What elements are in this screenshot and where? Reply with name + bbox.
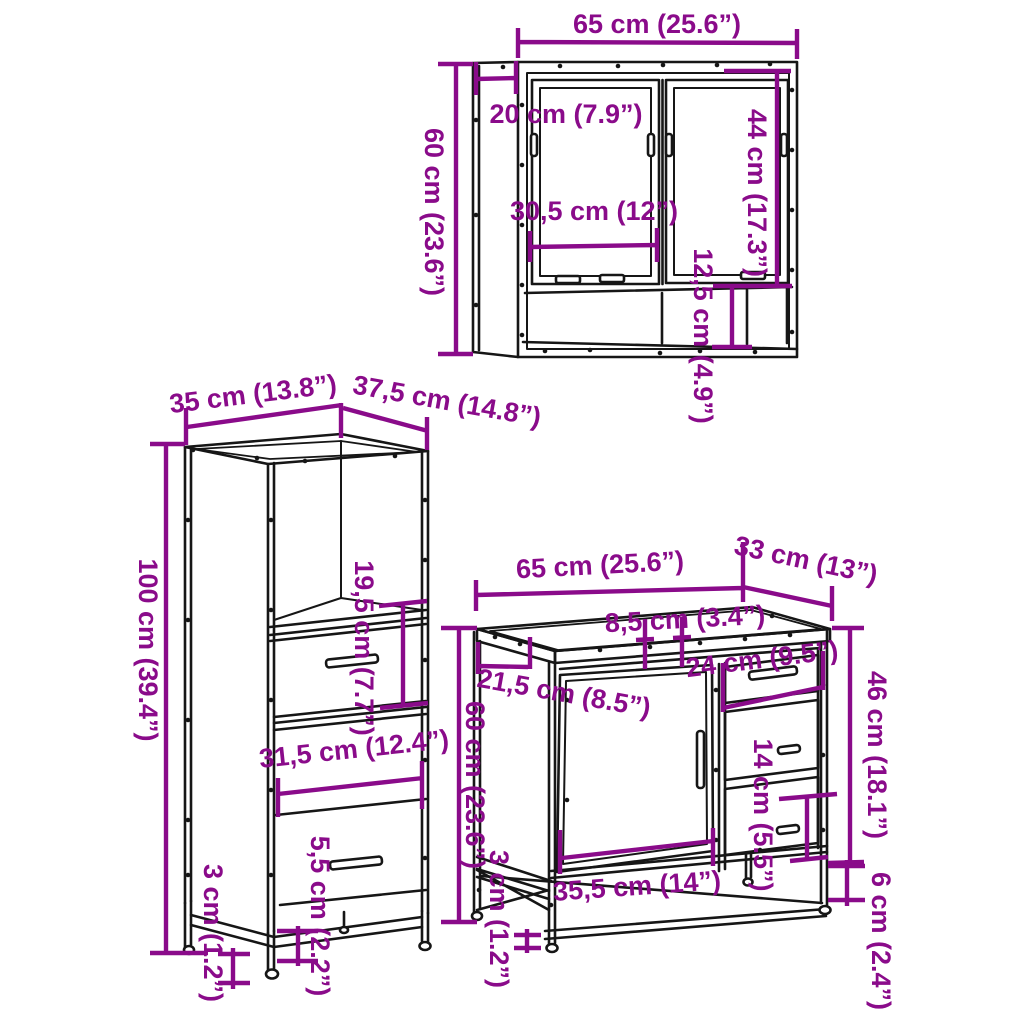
- door-handle-icon: [697, 731, 704, 788]
- mirror-door-height-label: 44 cm (17.3”): [742, 109, 772, 277]
- sink-leg-height-label: 6 cm (2.4”): [866, 872, 896, 1010]
- drawer-handle-icon: [777, 825, 800, 835]
- mirror-shelf-height-label: 12,5 cm (4.9”): [688, 248, 718, 424]
- mirror-handle-icon: [531, 134, 537, 156]
- sink-drawer-height-label: 14 cm (5.5”): [748, 738, 778, 891]
- mirror-height-label: 60 cm (23.6”): [419, 128, 449, 296]
- mirror-door-width-label: 30,5 cm (12”): [510, 196, 678, 226]
- sink-height-label: 60 cm (23.6”): [460, 701, 490, 869]
- tall-clearance-label: 5,5 cm (2.2”): [305, 836, 335, 997]
- diagram-canvas: 65 cm (25.6”) 60 cm (23.6”) 20 cm (7.9”)…: [0, 0, 1024, 1024]
- mirror-handle-icon: [666, 134, 672, 156]
- sink-body-height-label: 46 cm (18.1”): [862, 671, 892, 839]
- sink-foot-height-label: 3 cm (1.2”): [484, 850, 514, 988]
- tall-foot-height-label: 3 cm (1.2”): [198, 864, 228, 1002]
- tall-height-label: 100 cm (39.4”): [133, 558, 163, 741]
- mirror-handle-icon: [781, 134, 787, 156]
- drawer-handle-icon: [778, 745, 801, 755]
- mirror-handle-icon: [648, 134, 654, 156]
- furniture-dimension-diagram: 65 cm (25.6”) 60 cm (23.6”) 20 cm (7.9”)…: [0, 0, 1024, 1024]
- mirror-width-label: 65 cm (25.6”): [573, 9, 741, 39]
- mirror-depth-label: 20 cm (7.9”): [489, 99, 642, 129]
- tall-drawer-section-label: 19,5 cm (7.7”): [349, 560, 379, 736]
